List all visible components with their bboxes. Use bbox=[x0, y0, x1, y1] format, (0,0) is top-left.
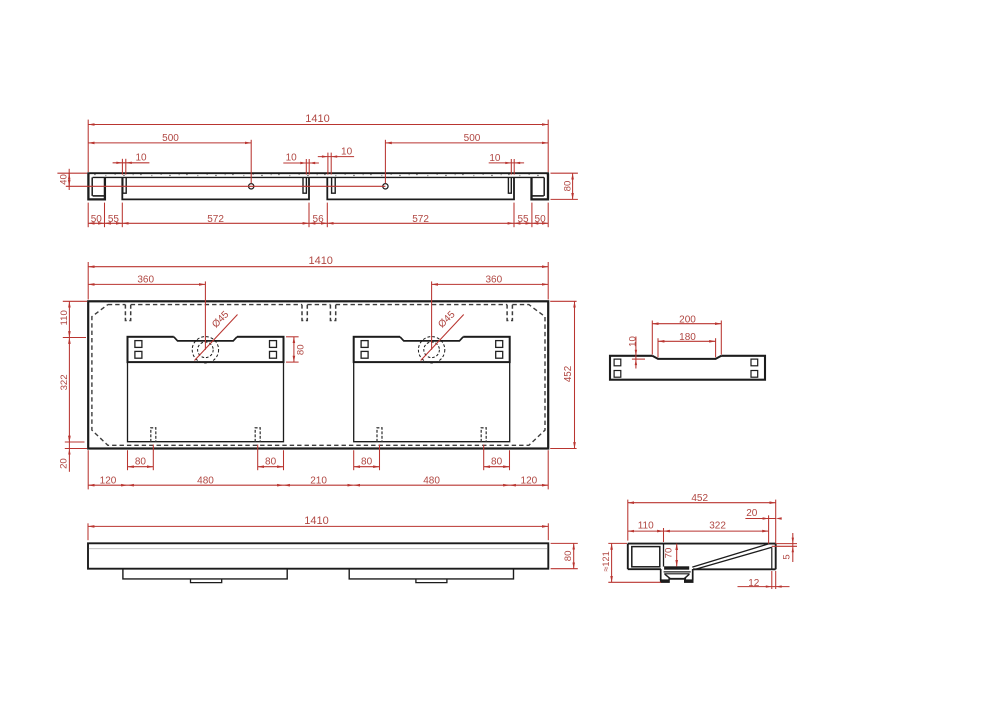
svg-text:55: 55 bbox=[517, 214, 529, 225]
svg-text:480: 480 bbox=[423, 475, 440, 486]
svg-text:120: 120 bbox=[100, 475, 117, 486]
svg-text:110: 110 bbox=[638, 521, 654, 532]
svg-text:56: 56 bbox=[313, 214, 325, 225]
svg-text:55: 55 bbox=[108, 214, 120, 225]
svg-text:≈121: ≈121 bbox=[601, 551, 611, 571]
svg-text:572: 572 bbox=[207, 214, 224, 225]
svg-text:10: 10 bbox=[489, 153, 501, 164]
svg-text:80: 80 bbox=[491, 457, 503, 468]
svg-text:Ø45: Ø45 bbox=[436, 309, 457, 330]
svg-text:10: 10 bbox=[286, 153, 298, 164]
svg-text:360: 360 bbox=[137, 274, 154, 285]
svg-text:80: 80 bbox=[135, 457, 147, 468]
svg-text:180: 180 bbox=[679, 332, 696, 343]
svg-text:322: 322 bbox=[709, 521, 726, 532]
svg-text:10: 10 bbox=[341, 146, 353, 157]
svg-text:80: 80 bbox=[563, 181, 574, 192]
svg-text:1410: 1410 bbox=[304, 515, 328, 527]
svg-text:40: 40 bbox=[59, 174, 70, 185]
svg-text:10: 10 bbox=[135, 153, 147, 164]
svg-text:360: 360 bbox=[485, 274, 502, 285]
svg-text:452: 452 bbox=[691, 493, 708, 504]
svg-text:12: 12 bbox=[748, 578, 760, 589]
svg-text:120: 120 bbox=[521, 475, 538, 486]
svg-text:480: 480 bbox=[197, 475, 214, 486]
svg-text:500: 500 bbox=[162, 133, 179, 144]
svg-text:80: 80 bbox=[563, 551, 574, 562]
svg-text:20: 20 bbox=[59, 458, 70, 469]
svg-text:200: 200 bbox=[679, 315, 696, 326]
svg-text:50: 50 bbox=[91, 214, 103, 225]
svg-text:80: 80 bbox=[265, 457, 277, 468]
svg-text:70: 70 bbox=[664, 548, 675, 559]
svg-text:1410: 1410 bbox=[308, 255, 332, 267]
svg-text:572: 572 bbox=[412, 214, 429, 225]
svg-text:20: 20 bbox=[746, 508, 758, 519]
svg-text:210: 210 bbox=[310, 475, 327, 486]
svg-text:Ø45: Ø45 bbox=[210, 309, 231, 330]
svg-text:1410: 1410 bbox=[305, 113, 329, 125]
svg-text:500: 500 bbox=[464, 133, 481, 144]
svg-text:110: 110 bbox=[59, 310, 70, 325]
svg-text:452: 452 bbox=[563, 366, 574, 382]
svg-text:50: 50 bbox=[535, 214, 547, 225]
svg-text:322: 322 bbox=[59, 374, 70, 390]
svg-text:80: 80 bbox=[296, 344, 307, 355]
svg-text:5: 5 bbox=[782, 554, 793, 559]
svg-text:80: 80 bbox=[361, 457, 373, 468]
svg-text:10: 10 bbox=[628, 336, 639, 347]
